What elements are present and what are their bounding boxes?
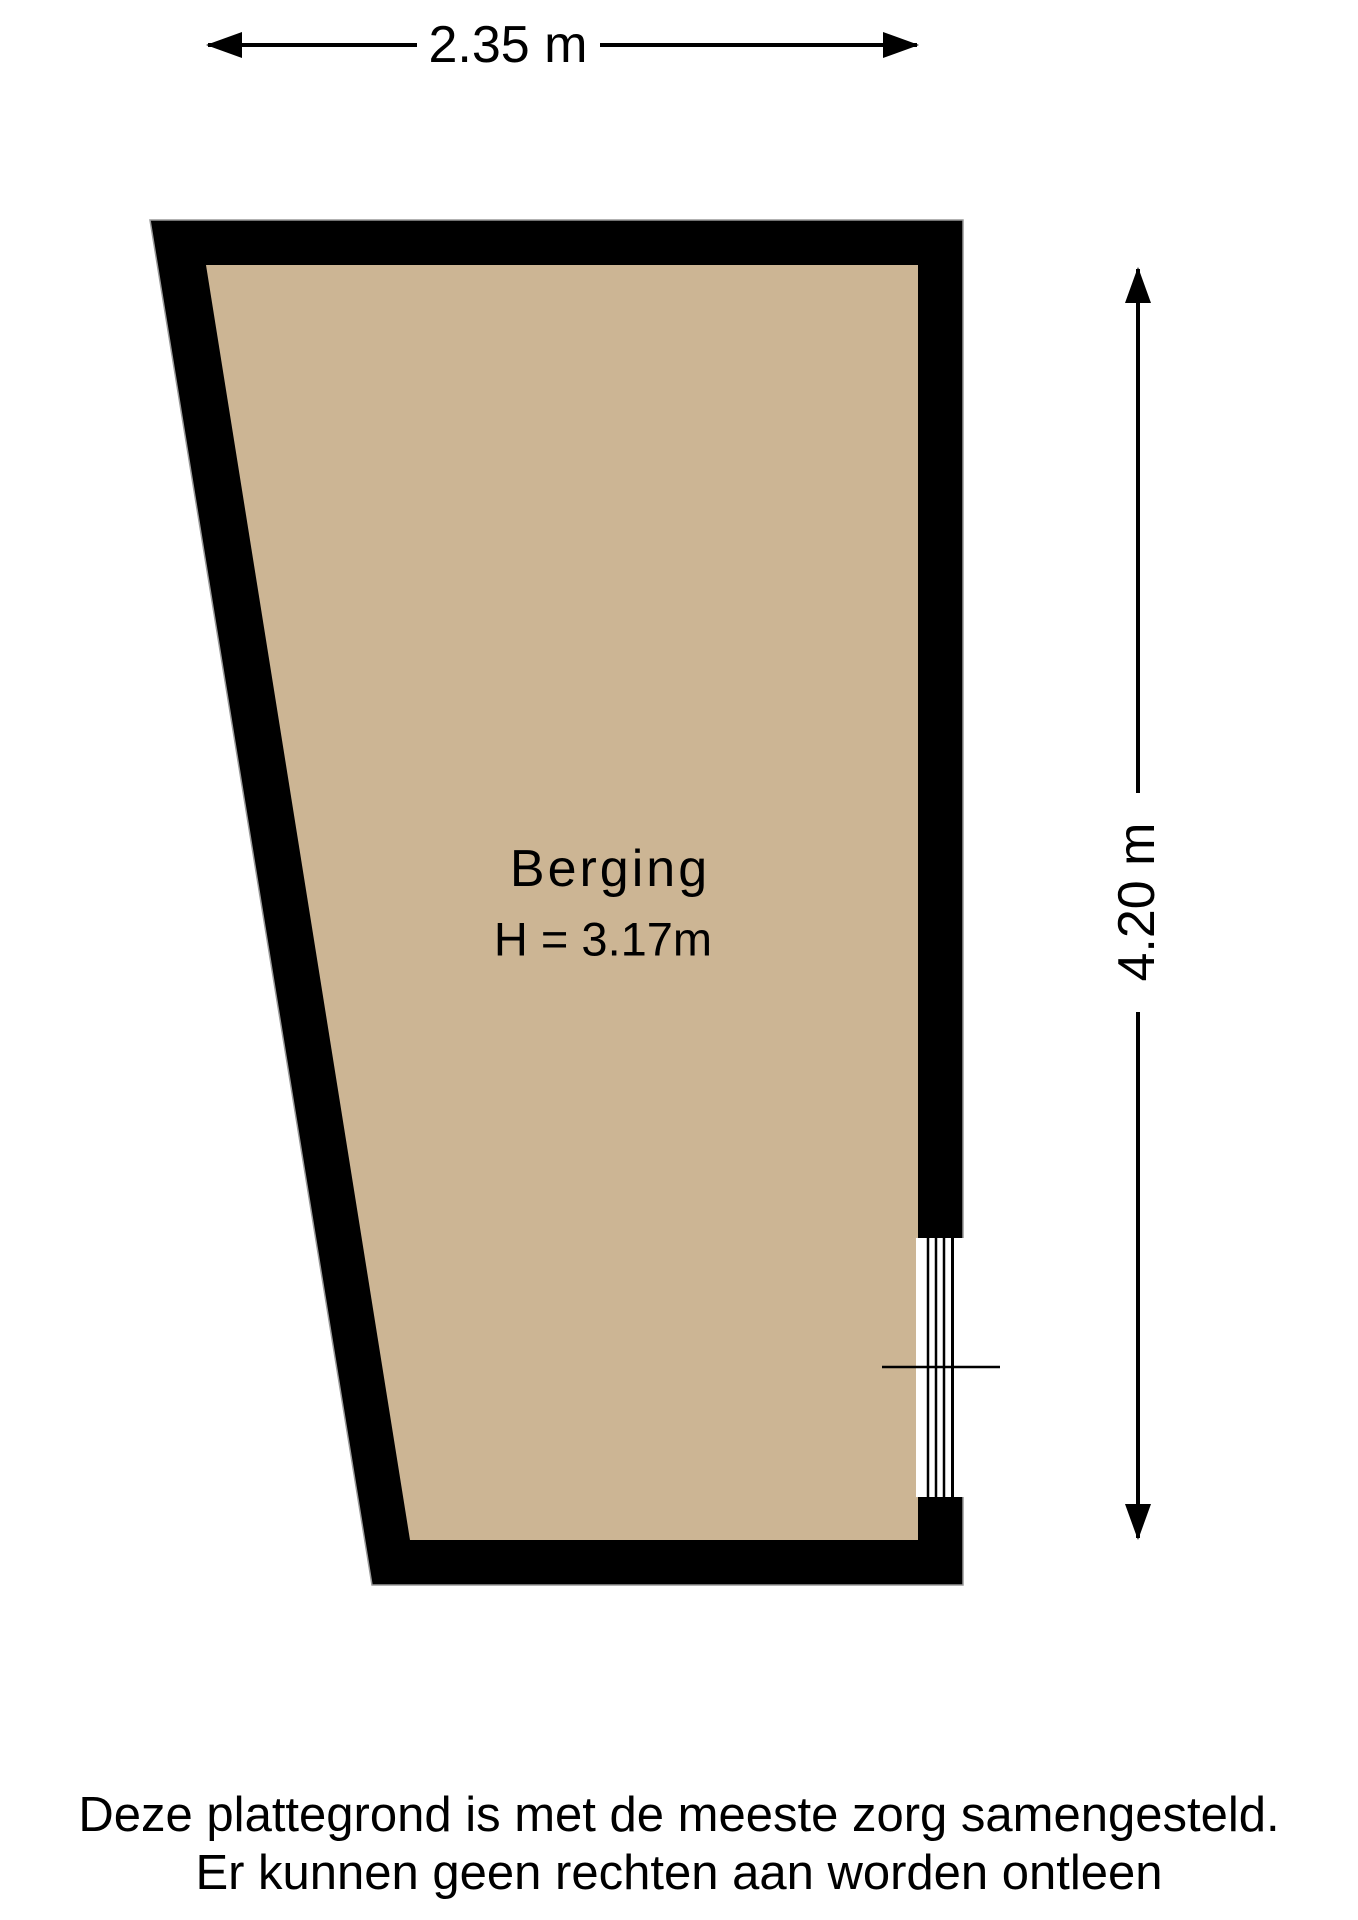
floor-plan-page: 2.35 m 4.20 m Berging H = 3.17m Deze pla… [0, 0, 1358, 1920]
arrow-up-icon [1125, 267, 1151, 303]
arrow-down-icon [1125, 1504, 1151, 1540]
disclaimer: Deze plattegrond is met de meeste zorg s… [0, 1786, 1358, 1902]
arrow-right-icon [883, 32, 919, 58]
room-name-label: Berging [510, 839, 710, 899]
room-floor [206, 265, 918, 1540]
disclaimer-line1: Deze plattegrond is met de meeste zorg s… [0, 1786, 1358, 1844]
storage-room [150, 220, 1000, 1585]
width-dimension-label: 2.35 m [429, 15, 588, 75]
depth-dimension-label: 4.20 m [1107, 823, 1167, 982]
arrow-left-icon [206, 32, 242, 58]
disclaimer-line2: Er kunnen geen rechten aan worden ontlee… [0, 1844, 1358, 1902]
room-ceiling-height-label: H = 3.17m [494, 912, 712, 967]
